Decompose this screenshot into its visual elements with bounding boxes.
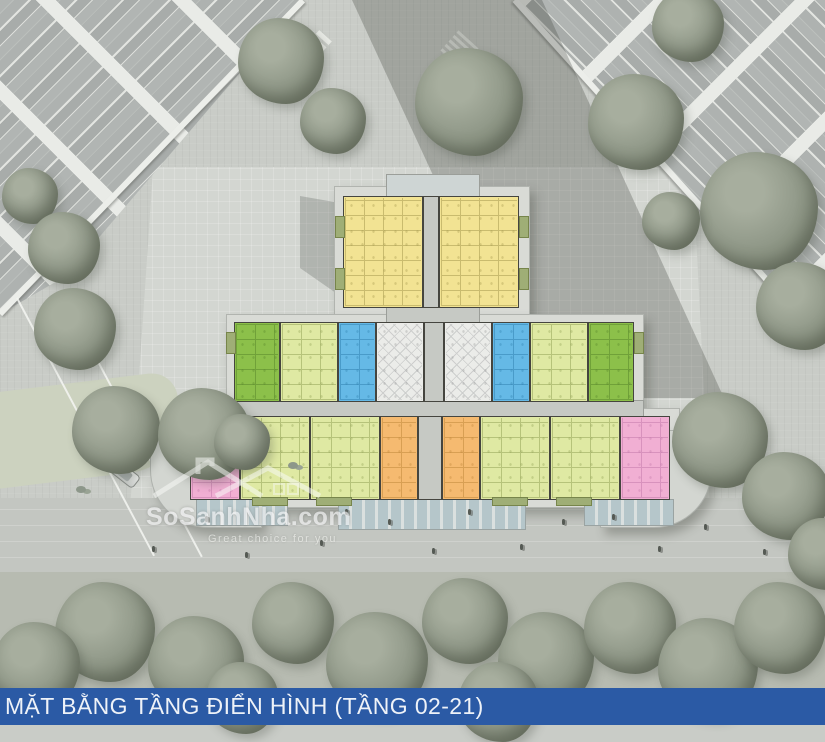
- corridor-middle-row: [424, 322, 444, 402]
- watermark: SoSanhNha.com Great choice for you: [146, 444, 346, 545]
- apartment-unit-green-4: [550, 416, 620, 500]
- person-figure: [704, 524, 707, 530]
- tree: [252, 582, 334, 664]
- balcony: [335, 216, 345, 238]
- caption-text: MẶT BẰNG TẦNG ĐIỂN HÌNH (TẦNG 02-21): [0, 693, 484, 720]
- watermark-brand: SoSanhNha.com: [146, 503, 346, 532]
- tree: [588, 74, 684, 170]
- middle-apartment-row: [234, 322, 634, 402]
- balcony: [634, 332, 644, 354]
- tree: [415, 48, 523, 156]
- tree: [734, 582, 825, 674]
- apartment-unit-yellow-right: [439, 196, 519, 308]
- person-figure: [562, 519, 565, 525]
- person-figure: [468, 509, 471, 515]
- person-figure: [152, 546, 155, 552]
- apartment-unit-green-left: [280, 322, 338, 402]
- tree: [300, 88, 366, 154]
- watermark-roof-logo: [146, 444, 336, 506]
- person-figure: [612, 514, 615, 520]
- top-apartment-row: [343, 196, 519, 308]
- tree: [238, 18, 324, 104]
- apartment-unit-blue-right: [492, 322, 530, 402]
- apartment-unit-lime-left: [234, 322, 280, 402]
- balcony: [226, 332, 236, 354]
- service-core-right: [444, 322, 492, 402]
- apartment-unit-orange-left: [380, 416, 418, 500]
- tree: [642, 192, 700, 250]
- person-figure: [432, 548, 435, 554]
- entrance-canopy-right: [584, 499, 674, 526]
- apartment-unit-yellow-left: [343, 196, 423, 308]
- corridor-top-block: [423, 196, 439, 308]
- tree: [700, 152, 818, 270]
- service-core-left: [376, 322, 424, 402]
- corridor-bottom-row: [418, 416, 442, 500]
- tree: [28, 212, 100, 284]
- balcony: [519, 268, 529, 290]
- person-figure: [245, 552, 248, 558]
- balcony: [335, 268, 345, 290]
- balcony: [492, 497, 528, 506]
- person-figure: [658, 546, 661, 552]
- apartment-unit-lime-right: [588, 322, 634, 402]
- entrance-canopy-top: [386, 174, 480, 198]
- balcony: [556, 497, 592, 506]
- tree: [34, 288, 116, 370]
- person-figure: [520, 544, 523, 550]
- balcony: [519, 216, 529, 238]
- apartment-unit-green-3: [480, 416, 550, 500]
- tree: [422, 578, 508, 664]
- person-figure: [388, 519, 391, 525]
- apartment-unit-blue-left: [338, 322, 376, 402]
- apartment-unit-orange-right: [442, 416, 480, 500]
- bush: [76, 486, 86, 493]
- watermark-tagline: Great choice for you: [208, 533, 346, 545]
- person-figure: [763, 549, 766, 555]
- caption-bar: MẶT BẰNG TẦNG ĐIỂN HÌNH (TẦNG 02-21): [0, 688, 825, 725]
- apartment-unit-pink-right: [620, 416, 670, 500]
- apartment-unit-green-right: [530, 322, 588, 402]
